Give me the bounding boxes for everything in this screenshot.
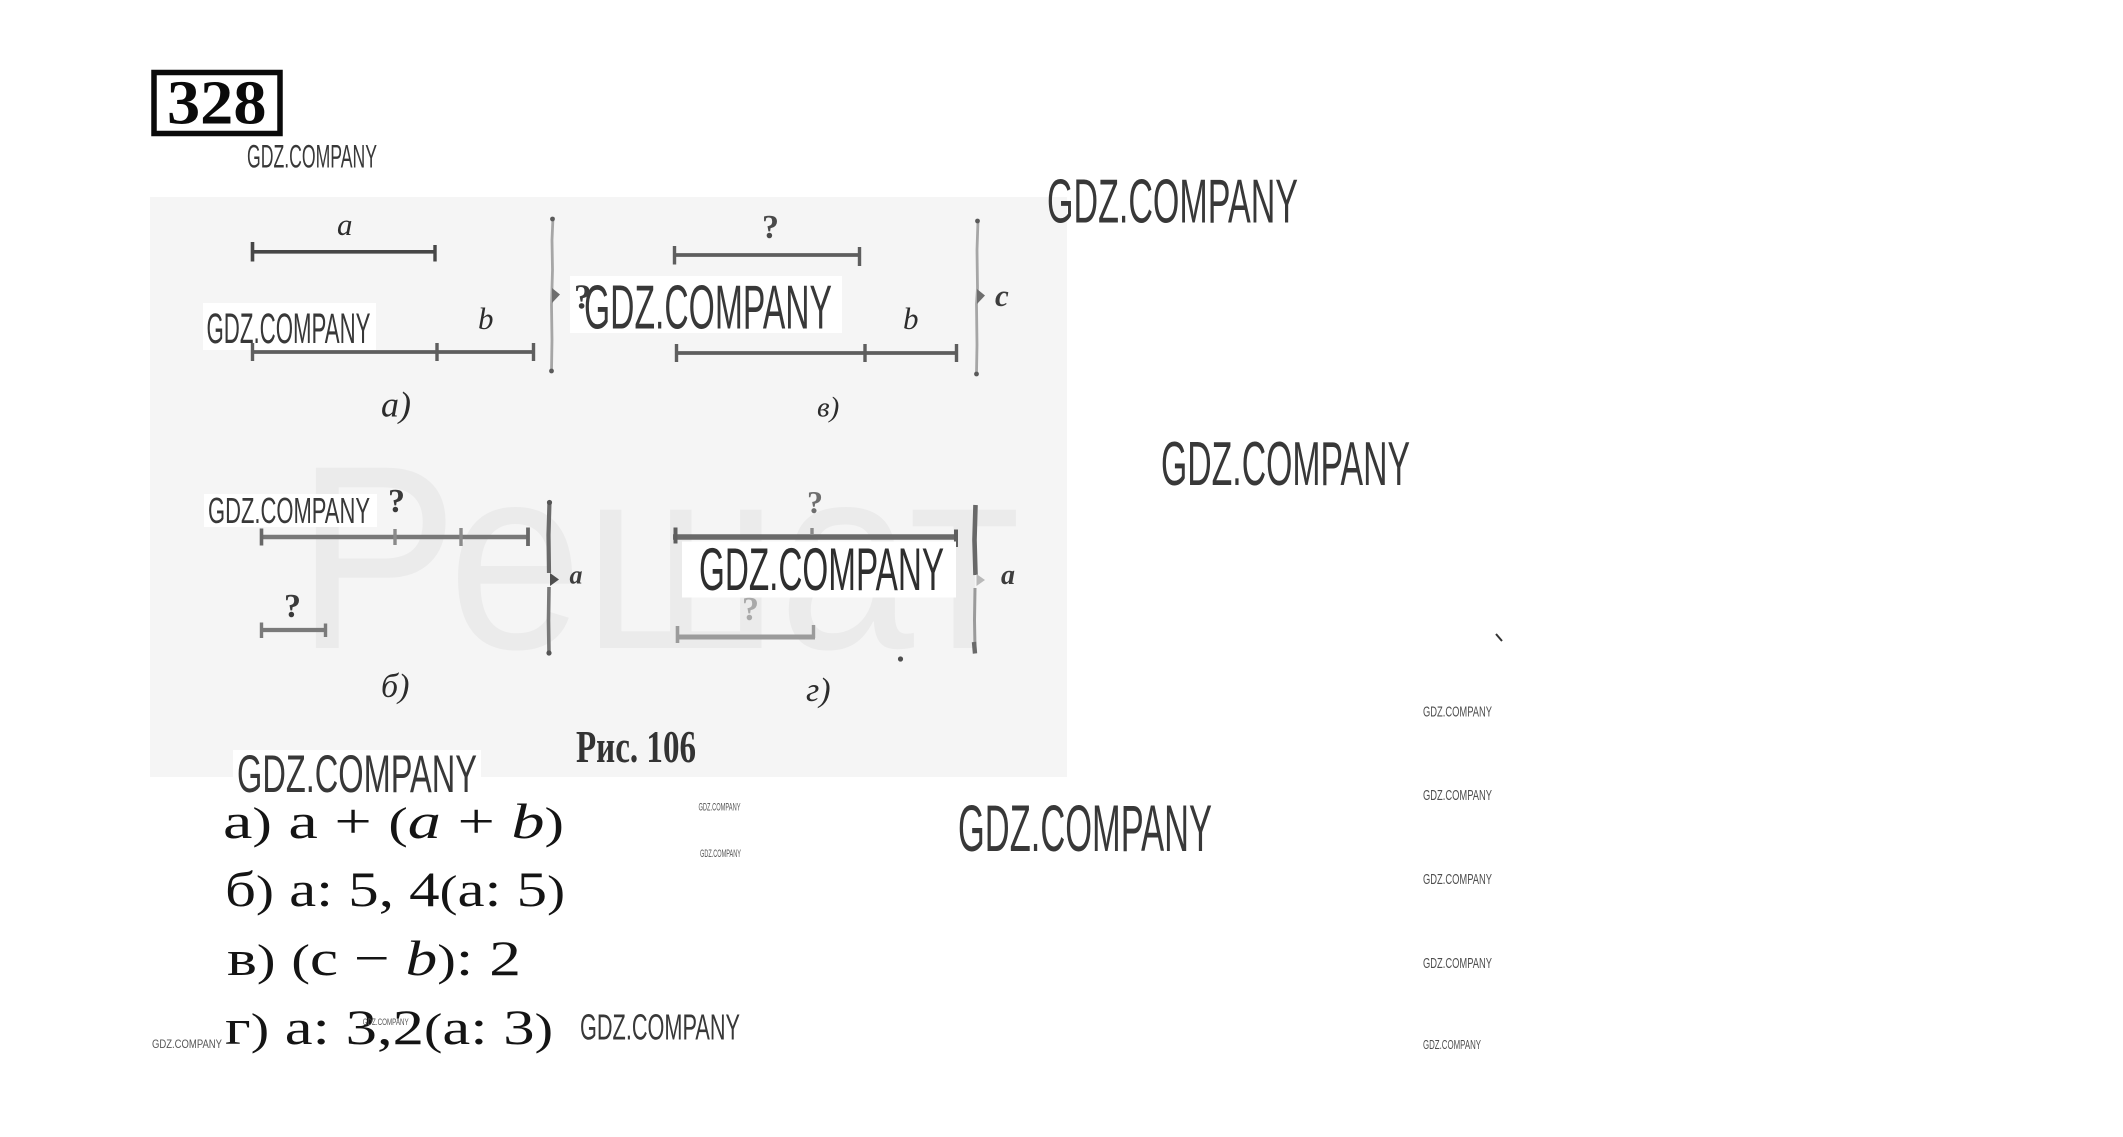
svg-text:a: a [570, 561, 583, 590]
svg-text:в): в) [817, 392, 839, 424]
svg-text:г): г) [806, 672, 831, 709]
svg-text:?: ? [284, 588, 301, 625]
svg-text:GDZ.COMPANY: GDZ.COMPANY [1047, 168, 1298, 237]
svg-text:?: ? [742, 591, 759, 628]
svg-text:GDZ.COMPANY: GDZ.COMPANY [1423, 955, 1492, 972]
svg-text:GDZ.COMPANY: GDZ.COMPANY [363, 1017, 409, 1028]
svg-text:GDZ.COMPANY: GDZ.COMPANY [699, 802, 741, 814]
svg-text:GDZ.COMPANY: GDZ.COMPANY [699, 536, 944, 603]
svg-text:GDZ.COMPANY: GDZ.COMPANY [1423, 1037, 1481, 1052]
svg-text:Рис. 106: Рис. 106 [576, 721, 696, 772]
svg-text:GDZ.COMPANY: GDZ.COMPANY [700, 848, 741, 860]
svg-text:?: ? [388, 483, 405, 520]
svg-text:в) (с − b): 2: в) (с − b): 2 [227, 930, 521, 986]
svg-text:a: a [337, 207, 353, 242]
svg-text:б) а: 5, 4(а: 5): б) а: 5, 4(а: 5) [225, 861, 565, 917]
svg-text:а): а) [381, 385, 411, 425]
svg-text:a: a [1001, 560, 1015, 591]
svg-text:GDZ.COMPANY: GDZ.COMPANY [247, 139, 377, 175]
svg-text:GDZ.COMPANY: GDZ.COMPANY [1423, 787, 1492, 804]
svg-text:GDZ.COMPANY: GDZ.COMPANY [1423, 871, 1492, 888]
svg-text:c: c [995, 278, 1009, 313]
svg-text:?: ? [762, 209, 779, 246]
svg-text:GDZ.COMPANY: GDZ.COMPANY [152, 1037, 222, 1051]
svg-text:GDZ.COMPANY: GDZ.COMPANY [584, 274, 832, 343]
svg-text:GDZ.COMPANY: GDZ.COMPANY [207, 305, 371, 353]
svg-text:а) а + (а + b): а) а + (а + b) [223, 793, 564, 849]
svg-text:b: b [903, 301, 919, 336]
svg-text:GDZ.COMPANY: GDZ.COMPANY [580, 1007, 740, 1048]
svg-text:GDZ.COMPANY: GDZ.COMPANY [958, 791, 1212, 865]
svg-text:b: b [478, 301, 494, 336]
svg-text:?: ? [807, 484, 823, 520]
svg-text:GDZ.COMPANY: GDZ.COMPANY [1423, 704, 1492, 721]
svg-text:GDZ.COMPANY: GDZ.COMPANY [208, 490, 370, 531]
svg-text:GDZ.COMPANY: GDZ.COMPANY [1161, 430, 1410, 499]
svg-text:?: ? [574, 278, 592, 317]
svg-text:б): б) [381, 668, 409, 705]
svg-text:328: 328 [167, 70, 267, 138]
